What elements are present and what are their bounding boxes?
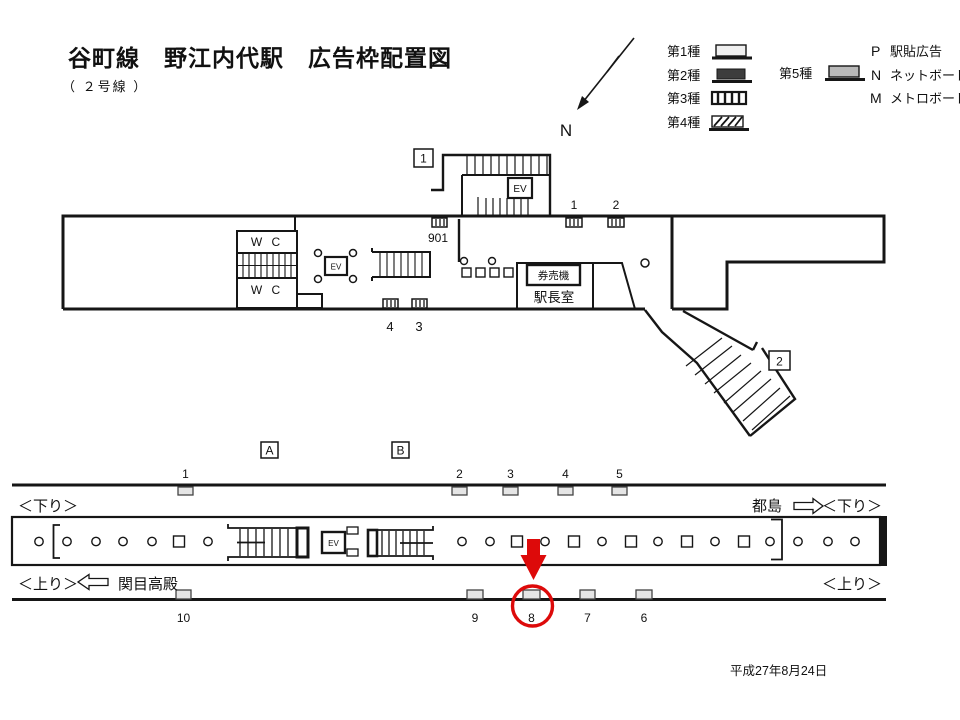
ticket-gate — [504, 268, 513, 277]
page-title: 谷町線 野江内代駅 広告枠配置図 — [68, 45, 452, 71]
exit2-marker-label: 2 — [776, 355, 783, 369]
wc-upper-label: W C — [251, 235, 283, 249]
ticket-gate — [462, 268, 471, 277]
pos7-label: 7 — [584, 611, 591, 625]
legend-type5-swatch — [829, 66, 859, 77]
concourse-elevator-label: EV — [331, 263, 342, 272]
elevator-pillar — [350, 250, 357, 257]
legend-type4-label: 第4種 — [667, 115, 700, 130]
ad-label-4: 4 — [386, 319, 393, 334]
ad-label-2: 2 — [613, 198, 620, 212]
legend-code-m-label: メトロボード — [890, 91, 960, 106]
exit1-lower-stairs — [478, 197, 528, 217]
pos10-label: 10 — [177, 611, 191, 625]
upper-ad-boxes: 1 2 3 4 5 — [178, 467, 627, 495]
legend-code-p-label: 駅貼広告 — [890, 44, 942, 59]
ad-box-pos5 — [612, 487, 627, 495]
wc-lower-label: W C — [251, 283, 283, 297]
ticket-gates — [461, 258, 514, 278]
left-arrow-icon — [78, 575, 108, 590]
pos5-label: 5 — [616, 467, 623, 481]
next-station-left: 関目高殿 — [118, 576, 178, 593]
ad-label-1: 1 — [571, 198, 578, 212]
north-arrow-head-icon — [577, 96, 589, 110]
ad-box-pos9 — [467, 590, 483, 599]
platform-elevator-label: EV — [328, 539, 339, 548]
utility-closet — [297, 294, 322, 308]
ad-box-pos3 — [503, 487, 518, 495]
down-label-right: ＜下り＞ — [822, 498, 882, 515]
down-label-left: ＜下り＞ — [18, 498, 78, 515]
ad-label-901: 901 — [428, 231, 448, 245]
ad-box-pos7 — [580, 590, 595, 599]
legend-code-m: M — [870, 90, 882, 106]
title-block: 谷町線 野江内代駅 広告枠配置図 （ ２号線 ） — [62, 45, 452, 94]
wc-stairs-hatch — [237, 254, 297, 277]
up-label-left: ＜上り＞ — [18, 576, 78, 593]
ad-box-pos6 — [636, 590, 652, 599]
exit1-elevator-label: EV — [513, 184, 527, 195]
stairs-east-landing — [368, 530, 377, 556]
exit1-stair-rails — [462, 175, 550, 217]
concourse-pillar — [641, 259, 649, 267]
ad-box-pos8 — [523, 590, 540, 599]
elevator-pillar — [315, 250, 322, 257]
stairs-west-landing — [297, 528, 308, 557]
exit2-passage: 2 — [645, 310, 795, 436]
up-label-right: ＜上り＞ — [822, 576, 882, 593]
pos9-label: 9 — [472, 611, 479, 625]
north-label: N — [560, 121, 572, 140]
gate-pillar — [461, 258, 468, 265]
elevator-pillar — [350, 276, 357, 283]
ad-box-pos4 — [558, 487, 573, 495]
platform-end-wall — [881, 516, 887, 566]
legend-type2-label: 第2種 — [667, 68, 700, 83]
lower-ad-boxes: 10 9 8 7 6 — [176, 590, 652, 625]
concourse-plan: EV 1 W C W C EV — [63, 149, 884, 436]
legend-code-n-label: ネットボード — [890, 68, 960, 83]
pos1-label: 1 — [182, 467, 189, 481]
legend-type3-label: 第3種 — [667, 91, 700, 106]
next-station-right: 都島 — [752, 498, 782, 515]
concourse-ad-boxes: 901 1 2 4 3 — [383, 198, 624, 334]
ticket-gate — [476, 268, 485, 277]
section-a-label: A — [265, 444, 273, 458]
page-subtitle: （ ２号線 ） — [62, 79, 148, 94]
pos3-label: 3 — [507, 467, 514, 481]
ad-box-pos2 — [452, 487, 467, 495]
exit1-upper-stairs — [467, 156, 547, 175]
revision-date: 平成27年8月24日 — [730, 664, 827, 678]
concourse-walls — [63, 216, 884, 309]
diagram-page: 谷町線 野江内代駅 広告枠配置図 （ ２号線 ） N 第1種 第2種 第3種 第… — [0, 0, 960, 720]
pos6-label: 6 — [641, 611, 648, 625]
concourse-stairs-hatch — [380, 253, 422, 276]
ad-box-pos1 — [178, 487, 193, 495]
ticket-gate — [490, 268, 499, 277]
legend-code-n: N — [871, 67, 881, 83]
ticket-machine-label: 券売機 — [538, 269, 570, 282]
right-arrow-icon — [794, 499, 823, 514]
station-layout-svg: 谷町線 野江内代駅 広告枠配置図 （ ２号線 ） N 第1種 第2種 第3種 第… — [0, 0, 960, 720]
legend-type2-swatch — [717, 69, 745, 79]
section-b-label: B — [396, 444, 404, 458]
exit1-marker-label: 1 — [420, 152, 427, 166]
north-arrow: N — [560, 38, 634, 140]
pos4-label: 4 — [562, 467, 569, 481]
ad-box-pos10 — [176, 590, 191, 599]
legend-code-p: P — [871, 43, 880, 59]
station-master-label: 駅長室 — [534, 289, 575, 305]
north-arrow-tick — [607, 56, 619, 72]
legend: 第1種 第2種 第3種 第4種 第5種 P 駅貼広告 N ネットボード M メト… — [667, 43, 960, 130]
legend-type5-label: 第5種 — [779, 66, 812, 81]
legend-type1-swatch — [716, 45, 746, 56]
platform-plan: A B 1 2 3 4 5 ＜下り＞ 都島 ＜下り＞ — [12, 442, 887, 625]
pos8-label: 8 — [528, 611, 535, 625]
elevator-pillar — [315, 276, 322, 283]
gate-pillar — [489, 258, 496, 265]
legend-type1-label: 第1種 — [667, 44, 700, 59]
ad-label-3: 3 — [415, 319, 422, 334]
pos2-label: 2 — [456, 467, 463, 481]
